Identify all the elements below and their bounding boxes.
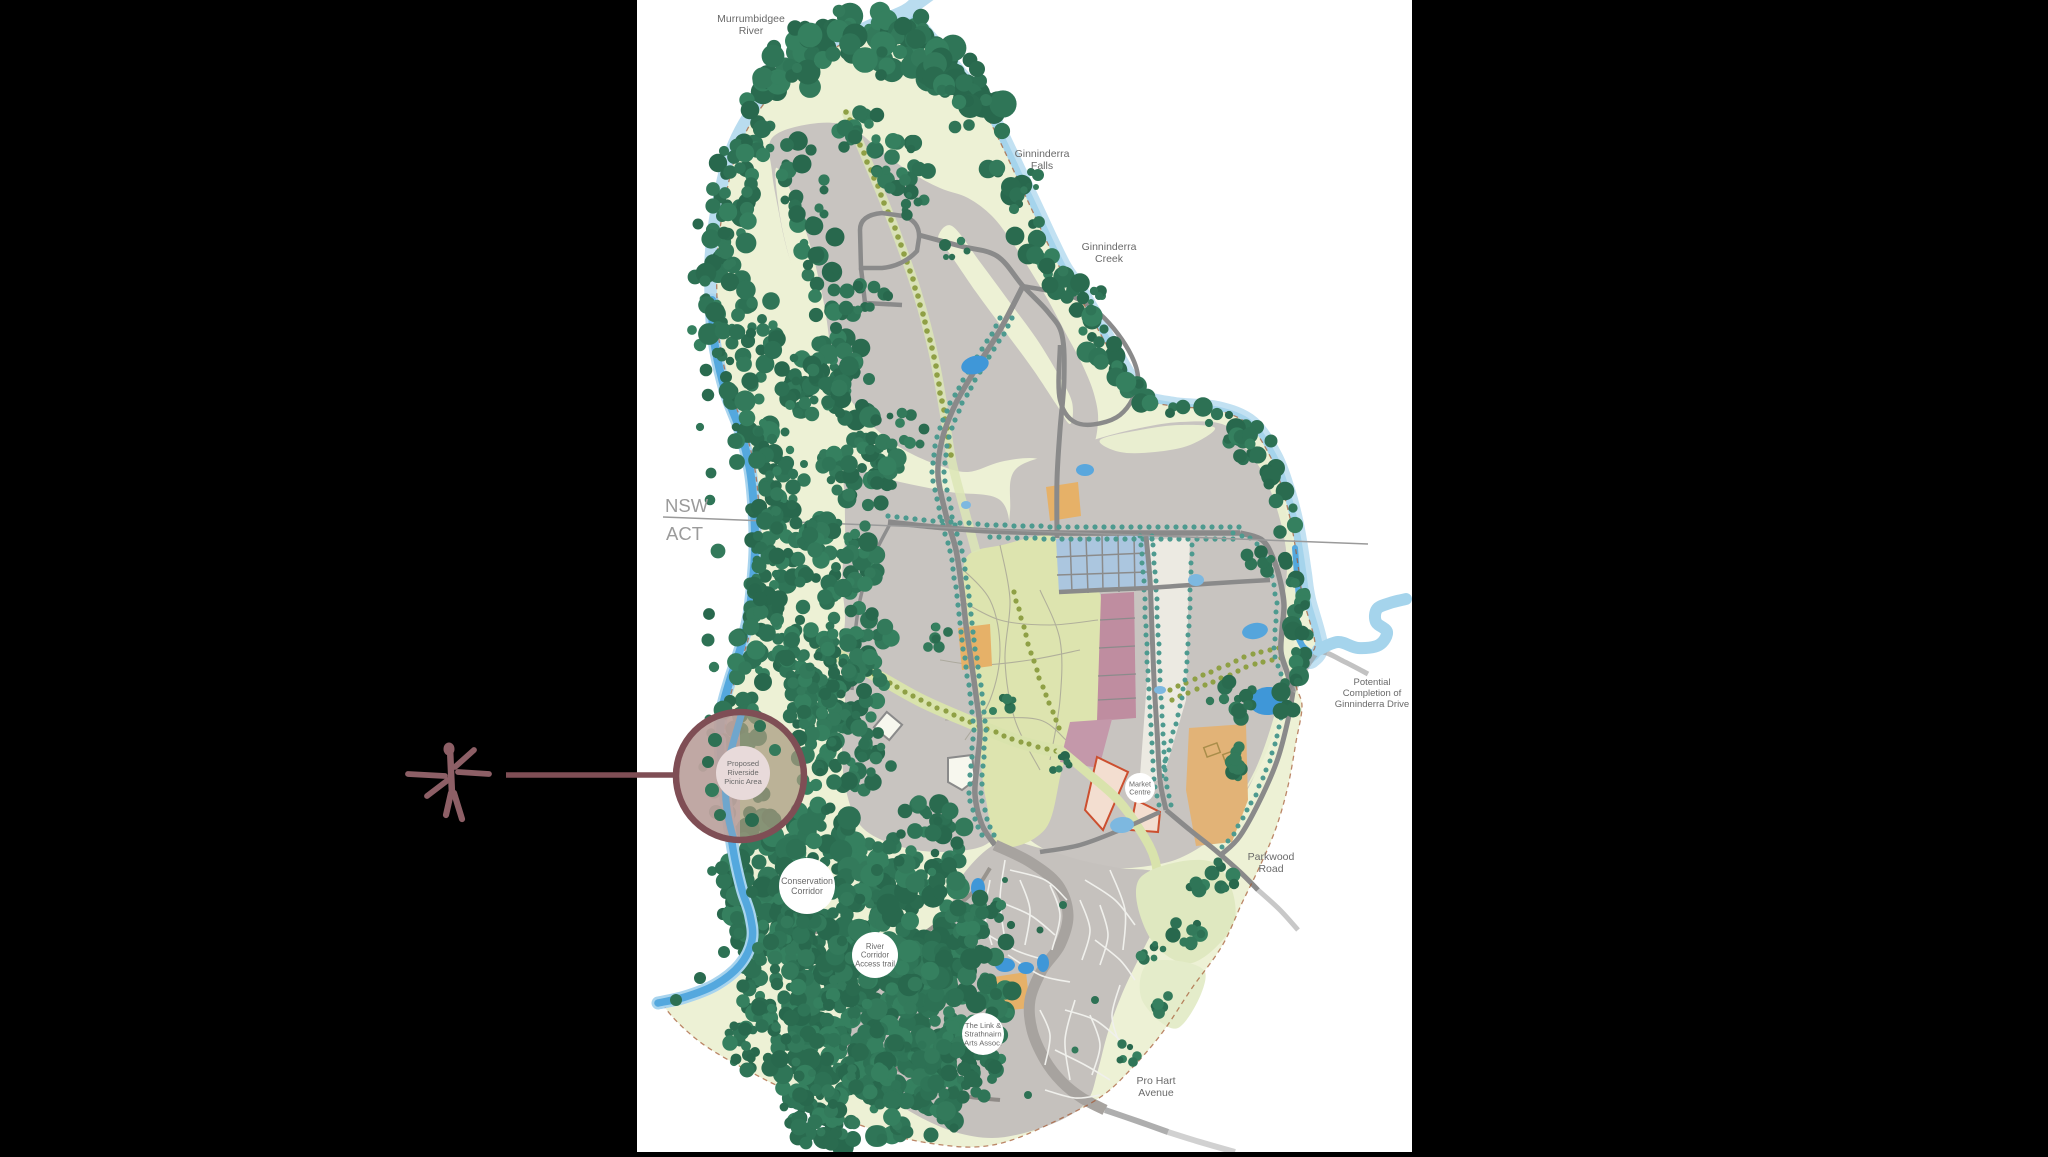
svg-text:MarketCentre: MarketCentre bbox=[1129, 779, 1151, 796]
svg-text:NSW: NSW bbox=[665, 495, 709, 516]
svg-text:ProposedRiversidePicnic Area: ProposedRiversidePicnic Area bbox=[724, 759, 762, 786]
svg-text:ACT: ACT bbox=[666, 523, 703, 544]
svg-text:The Link &StrathnairnArts Asso: The Link &StrathnairnArts Assoc. bbox=[964, 1021, 1002, 1047]
svg-text:Pro HartAvenue: Pro HartAvenue bbox=[1136, 1075, 1175, 1099]
